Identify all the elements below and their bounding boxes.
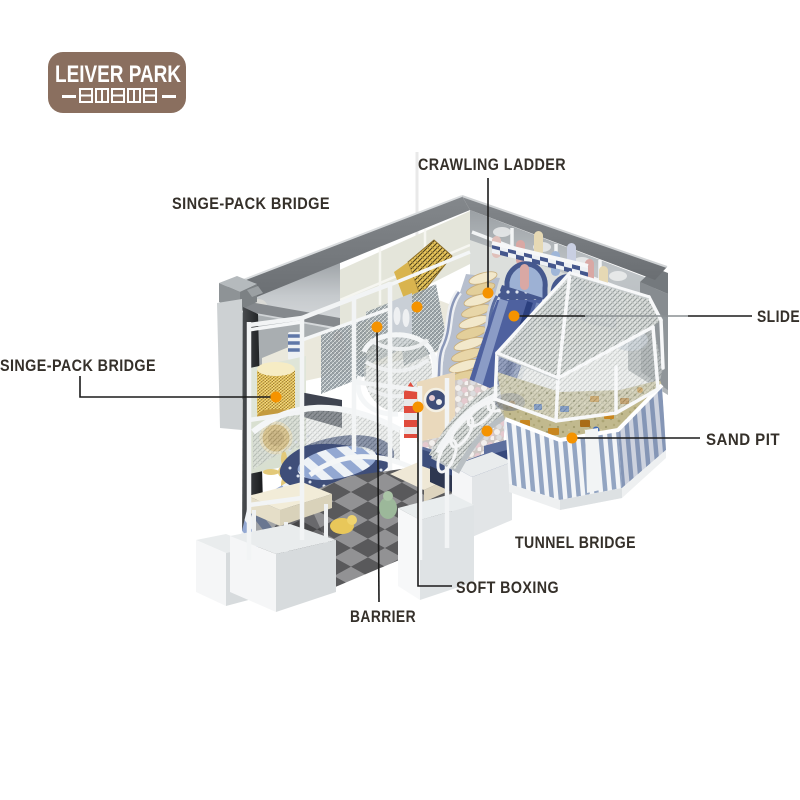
svg-text:SOFT BOXING: SOFT BOXING — [456, 578, 559, 597]
svg-text:CRAWLING LADDER: CRAWLING LADDER — [418, 155, 566, 174]
svg-text:BARRIER: BARRIER — [350, 607, 416, 626]
svg-text:SINGE-PACK BRIDGE: SINGE-PACK BRIDGE — [172, 194, 330, 213]
svg-text:LEIVER PARK: LEIVER PARK — [55, 61, 182, 88]
svg-text:SAND PIT: SAND PIT — [706, 430, 780, 449]
svg-text:SINGE-PACK BRIDGE: SINGE-PACK BRIDGE — [0, 356, 156, 375]
svg-text:SLIDE: SLIDE — [757, 307, 800, 326]
svg-text:TUNNEL BRIDGE: TUNNEL BRIDGE — [515, 533, 636, 552]
